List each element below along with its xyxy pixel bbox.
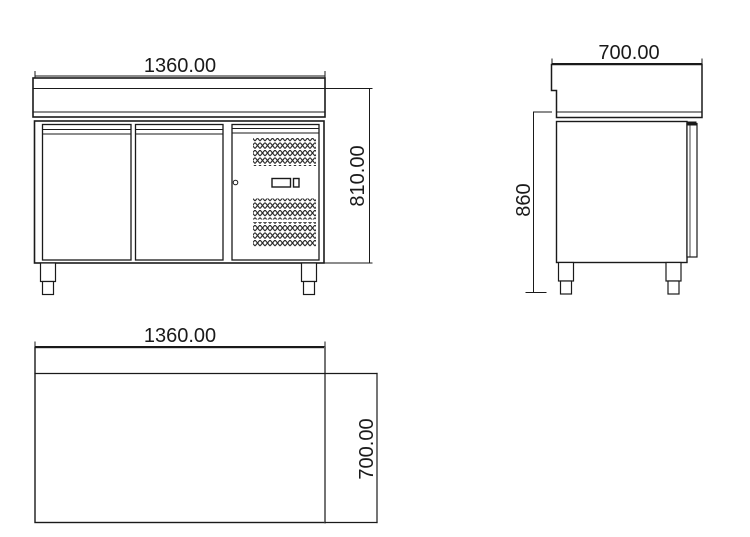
- front-leg-left: [41, 263, 56, 295]
- plan-view: 1360.00 700.00: [35, 325, 378, 523]
- door-middle: [136, 125, 224, 261]
- side-view: 700.00 860: [513, 42, 702, 294]
- side-leg-left: [559, 263, 574, 295]
- plan-depth-dimension: 700.00: [356, 374, 378, 523]
- ventilation-grille-middle: [253, 199, 316, 220]
- thermostat-display: [272, 179, 291, 188]
- side-leg-right: [666, 263, 681, 295]
- side-door: [687, 122, 697, 258]
- side-height-label: 860: [513, 183, 535, 216]
- worktop-front: [33, 78, 325, 117]
- ventilation-grille-top: [253, 138, 316, 166]
- screw-hole: [233, 180, 238, 185]
- door-handle: [688, 122, 697, 126]
- side-height-dimension: 860: [513, 112, 552, 293]
- power-switch: [294, 179, 300, 188]
- cabinet-side: [557, 122, 688, 263]
- front-width-label: 1360.00: [144, 55, 216, 77]
- plan-width-label: 1360.00: [144, 325, 216, 347]
- worktop-plan: [35, 348, 377, 523]
- worktop-side: [552, 65, 703, 118]
- door-left: [43, 125, 132, 261]
- plan-depth-label: 700.00: [356, 418, 378, 479]
- front-height-dimension: 810.00: [324, 89, 372, 264]
- technical-drawing-canvas: 1360.00: [0, 0, 750, 537]
- ventilation-grille-bottom: [253, 222, 316, 247]
- side-depth-label: 700.00: [598, 42, 659, 64]
- front-leg-right: [302, 263, 317, 295]
- front-view: 1360.00: [33, 55, 372, 295]
- front-height-label: 810.00: [347, 145, 369, 206]
- refrigerated-counter-drawing: 1360.00: [0, 0, 750, 537]
- compressor-panel: [232, 125, 319, 261]
- front-width-dimension: 1360.00: [35, 55, 325, 81]
